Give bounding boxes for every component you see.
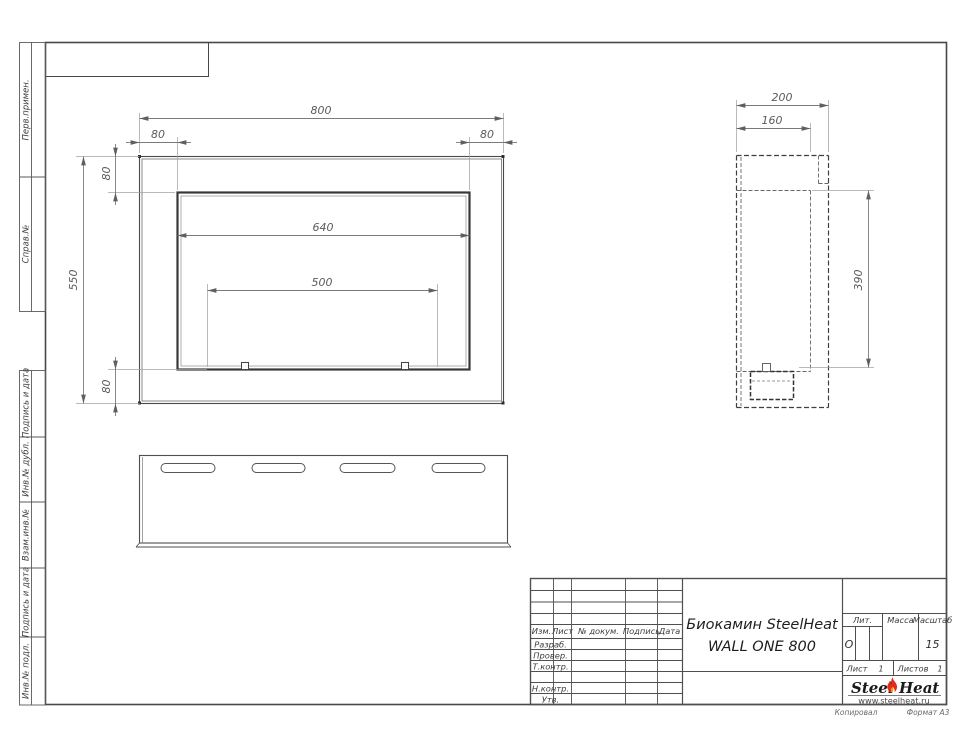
tb-list-value: 1 xyxy=(878,664,883,674)
tb-col-izm: Изм. xyxy=(532,626,552,636)
logo-url: www.steelheat.ru xyxy=(858,696,929,706)
side-view-dimensions: 200 160 390 xyxy=(737,91,875,368)
burner-box xyxy=(751,364,794,400)
tb-col-podpis: Подпись xyxy=(623,626,660,636)
dim-side-opening-height: 390 xyxy=(852,270,865,291)
footer-format: Формат А3 xyxy=(907,708,950,717)
dim-front-top-offset: 80 xyxy=(100,167,113,181)
tb-col-docnum: № докум. xyxy=(577,626,619,636)
dim-front-left-offset: 80 xyxy=(151,128,165,141)
sheet-frame xyxy=(46,43,947,705)
tb-col-data: Дата xyxy=(658,626,680,636)
margin-label-sprav-no: Справ.№ xyxy=(22,225,32,264)
tb-col-list: Лист xyxy=(551,626,574,636)
tb-lit-label: Лит. xyxy=(852,615,872,625)
tb-lit-value: О xyxy=(845,638,854,651)
footer-kopiroval: Копировал xyxy=(835,708,878,717)
margin-label-inv-dubl: Инв.№ дубл. xyxy=(22,441,32,496)
tb-row-prover: Провер. xyxy=(533,651,567,661)
doc-title-line2: WALL ONE 800 xyxy=(708,639,816,655)
footer-notes: Копировал Формат А3 xyxy=(835,708,950,717)
dim-side-inner-depth: 160 xyxy=(762,114,783,127)
side-view xyxy=(737,156,829,408)
dim-front-bottom-offset: 80 xyxy=(100,380,113,394)
dim-front-opening-width: 640 xyxy=(313,221,334,234)
dim-front-total-height: 550 xyxy=(67,270,80,291)
margin-label-podpis-data-2: Подпись и дата xyxy=(22,567,32,637)
dim-front-right-offset: 80 xyxy=(480,128,494,141)
left-margin-labels: Перв.примен. Справ.№ Подпись и дата Инв.… xyxy=(22,79,32,699)
tb-masshtab-value: 15 xyxy=(926,638,940,651)
tb-listov-label: Листов xyxy=(897,664,929,674)
drawing-canvas: Перв.примен. Справ.№ Подпись и дата Инв.… xyxy=(0,0,970,749)
logo-heat: Heat xyxy=(898,679,939,697)
tb-row-tkontr: Т.контр. xyxy=(533,662,569,672)
drawing-sheet: Перв.примен. Справ.№ Подпись и дата Инв.… xyxy=(0,0,970,749)
vent-slots xyxy=(161,464,485,473)
dim-front-burner-width: 500 xyxy=(312,276,333,289)
steelheat-logo: Steel Heat www.steelheat.ru xyxy=(848,677,941,706)
margin-label-inv-podl: Инв.№ подл. xyxy=(22,643,32,699)
tb-list-label: Лист xyxy=(845,664,868,674)
tb-massa-label: Масса xyxy=(887,615,913,625)
doc-title-line1: Биокамин SteelHeat xyxy=(686,617,839,633)
margin-label-vzam-inv: Взам.инв.№ xyxy=(22,509,32,561)
dim-side-total-depth: 200 xyxy=(772,91,793,104)
tb-row-nkontr: Н.контр. xyxy=(532,684,569,694)
margin-label-podpis-data-1: Подпись и дата xyxy=(22,368,32,438)
dim-front-total-width: 800 xyxy=(311,104,332,117)
bottom-view xyxy=(136,456,511,548)
margin-label-perv-primen: Перв.примен. xyxy=(22,79,32,140)
tb-listov-value: 1 xyxy=(937,664,942,674)
tb-row-razrab: Разраб. xyxy=(534,640,567,650)
tb-masshtab-label: Масштаб xyxy=(913,615,952,625)
tb-row-utv: Утв. xyxy=(542,695,559,705)
